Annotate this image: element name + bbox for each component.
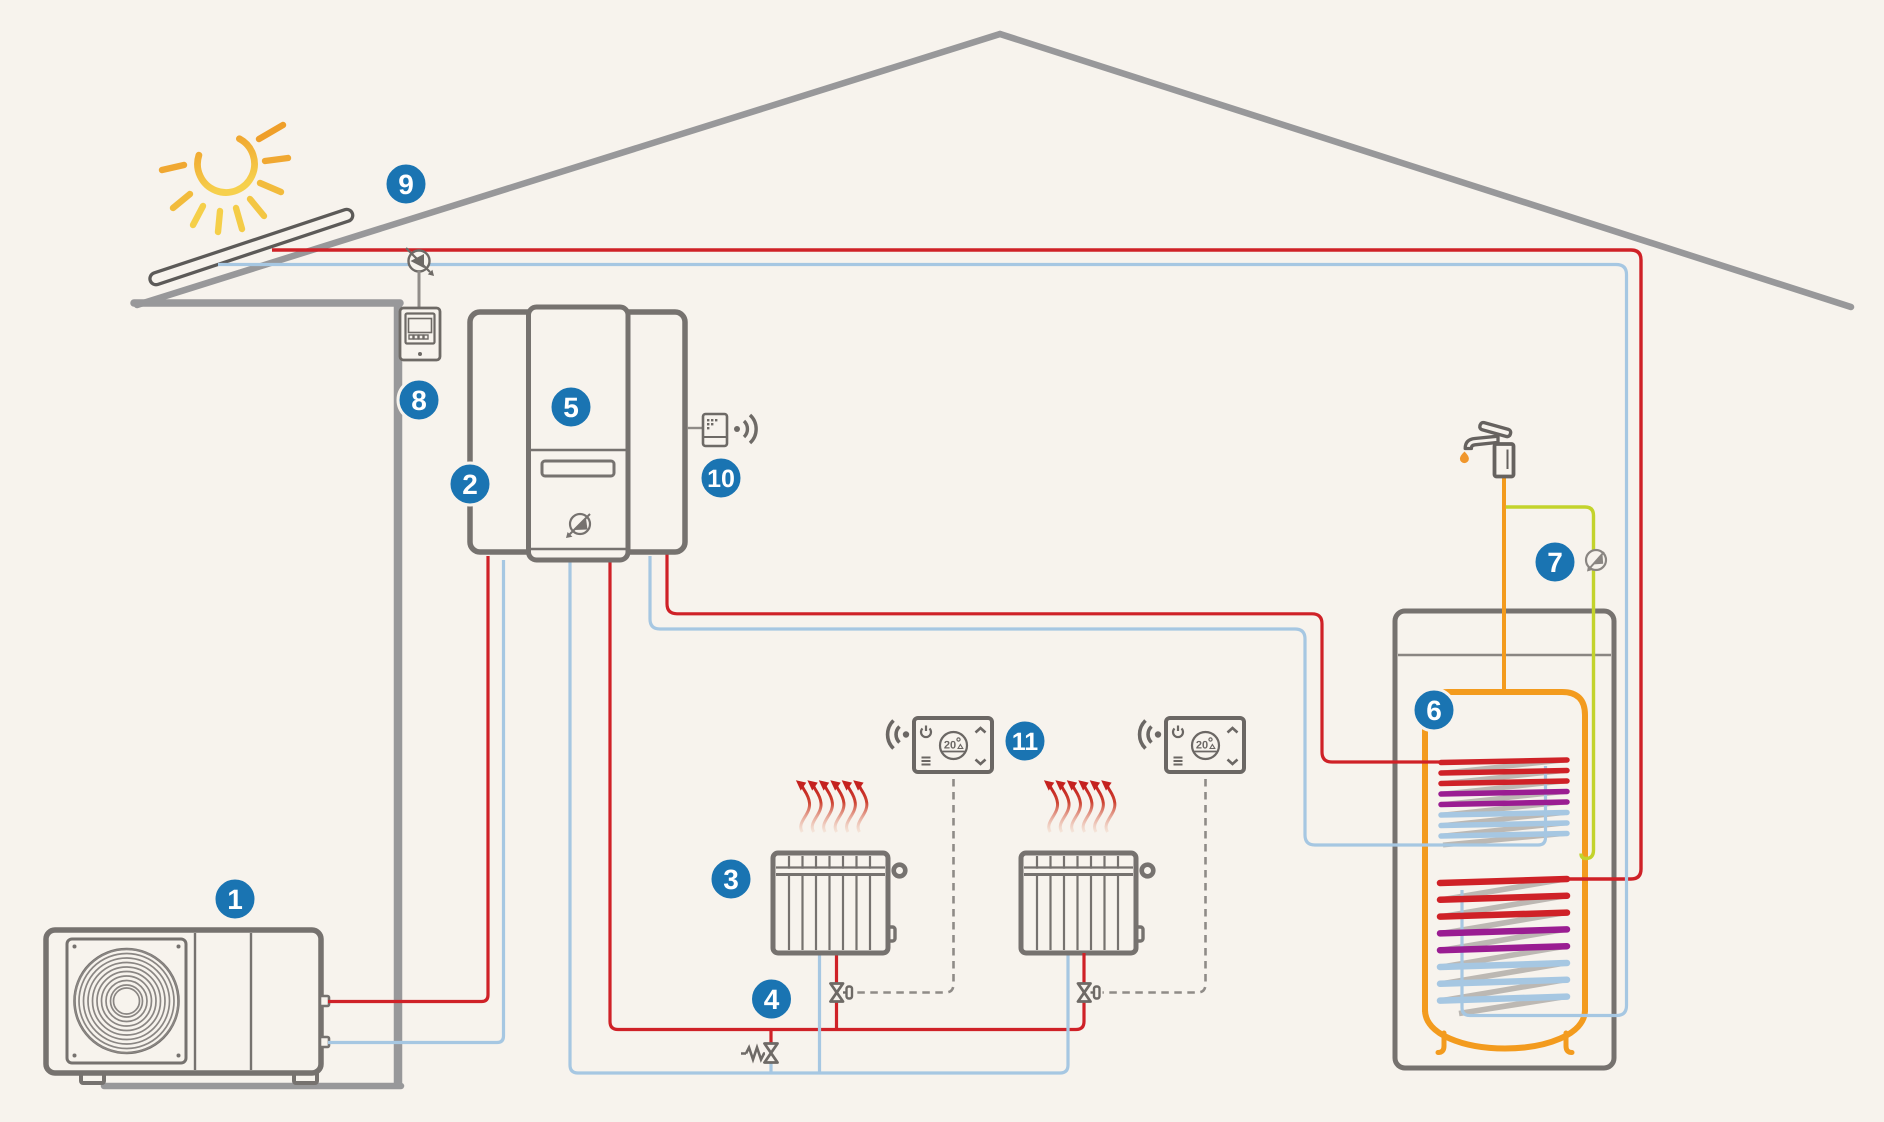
- svg-text:8: 8: [411, 385, 427, 416]
- svg-text:6: 6: [1426, 695, 1442, 726]
- svg-text:10: 10: [707, 465, 735, 493]
- svg-text:4: 4: [764, 984, 780, 1015]
- svg-text:20: 20: [1196, 740, 1208, 752]
- svg-text:9: 9: [398, 169, 414, 200]
- svg-text:5: 5: [563, 392, 579, 423]
- svg-text:2: 2: [462, 469, 478, 500]
- svg-text:20: 20: [944, 740, 956, 752]
- svg-text:3: 3: [723, 864, 739, 895]
- svg-text:7: 7: [1547, 547, 1563, 578]
- svg-text:11: 11: [1012, 728, 1039, 756]
- svg-text:1: 1: [227, 884, 243, 915]
